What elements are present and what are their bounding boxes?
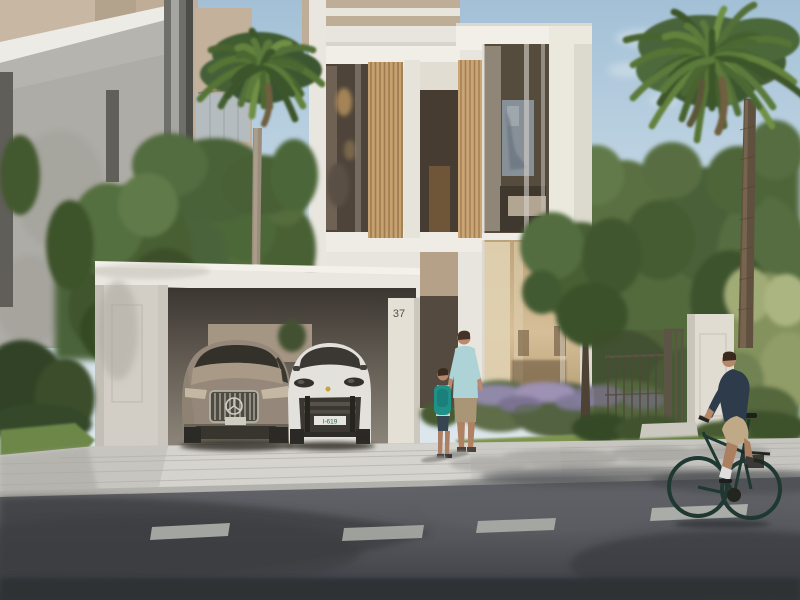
- svg-text:I-619: I-619: [323, 419, 338, 426]
- svg-text:37: 37: [393, 308, 405, 320]
